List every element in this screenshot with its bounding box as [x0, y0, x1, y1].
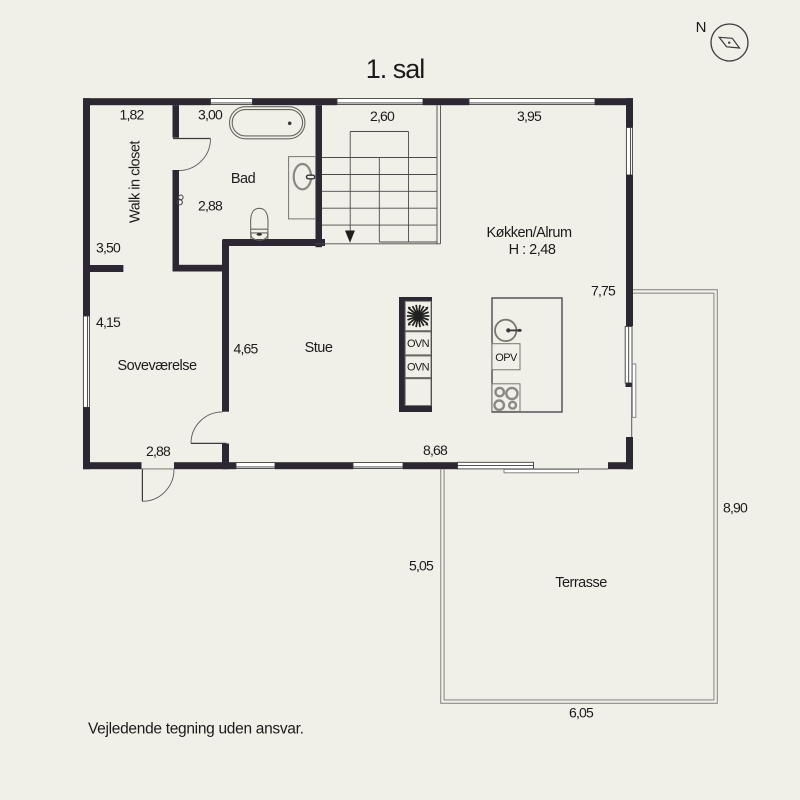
svg-text:8,68: 8,68	[423, 442, 448, 458]
svg-text:1,82: 1,82	[119, 107, 144, 123]
svg-text:OPV: OPV	[495, 352, 518, 364]
svg-text:2,88: 2,88	[198, 198, 223, 214]
svg-text:3,95: 3,95	[517, 108, 542, 124]
svg-text:Vejledende tegning uden ansvar: Vejledende tegning uden ansvar.	[88, 721, 304, 738]
svg-text:OVN: OVN	[407, 338, 430, 350]
svg-text:5,05: 5,05	[409, 558, 434, 574]
svg-text:4,65: 4,65	[233, 341, 258, 357]
svg-text:Soveværelse: Soveværelse	[117, 358, 197, 374]
svg-text:7,75: 7,75	[591, 283, 616, 299]
svg-text:8,90: 8,90	[723, 500, 748, 516]
svg-text:Walk in closet: Walk in closet	[128, 141, 144, 223]
svg-text:3,50: 3,50	[96, 240, 121, 256]
svg-text:2,60: 2,60	[370, 108, 395, 124]
svg-text:Køkken/Alrum: Køkken/Alrum	[486, 225, 571, 241]
svg-text:1. sal: 1. sal	[366, 54, 425, 84]
svg-text:4,15: 4,15	[96, 314, 121, 330]
svg-text:Stue: Stue	[305, 340, 333, 356]
svg-text:OVN: OVN	[407, 362, 430, 374]
svg-text:6,05: 6,05	[569, 705, 594, 721]
svg-text:Bad: Bad	[231, 171, 256, 187]
svg-text:Terrasse: Terrasse	[555, 575, 607, 591]
svg-text:3,00: 3,00	[198, 107, 223, 123]
svg-text:2,88: 2,88	[146, 443, 171, 459]
svg-text:H : 2,48: H : 2,48	[509, 242, 556, 258]
svg-text:N: N	[696, 19, 707, 36]
